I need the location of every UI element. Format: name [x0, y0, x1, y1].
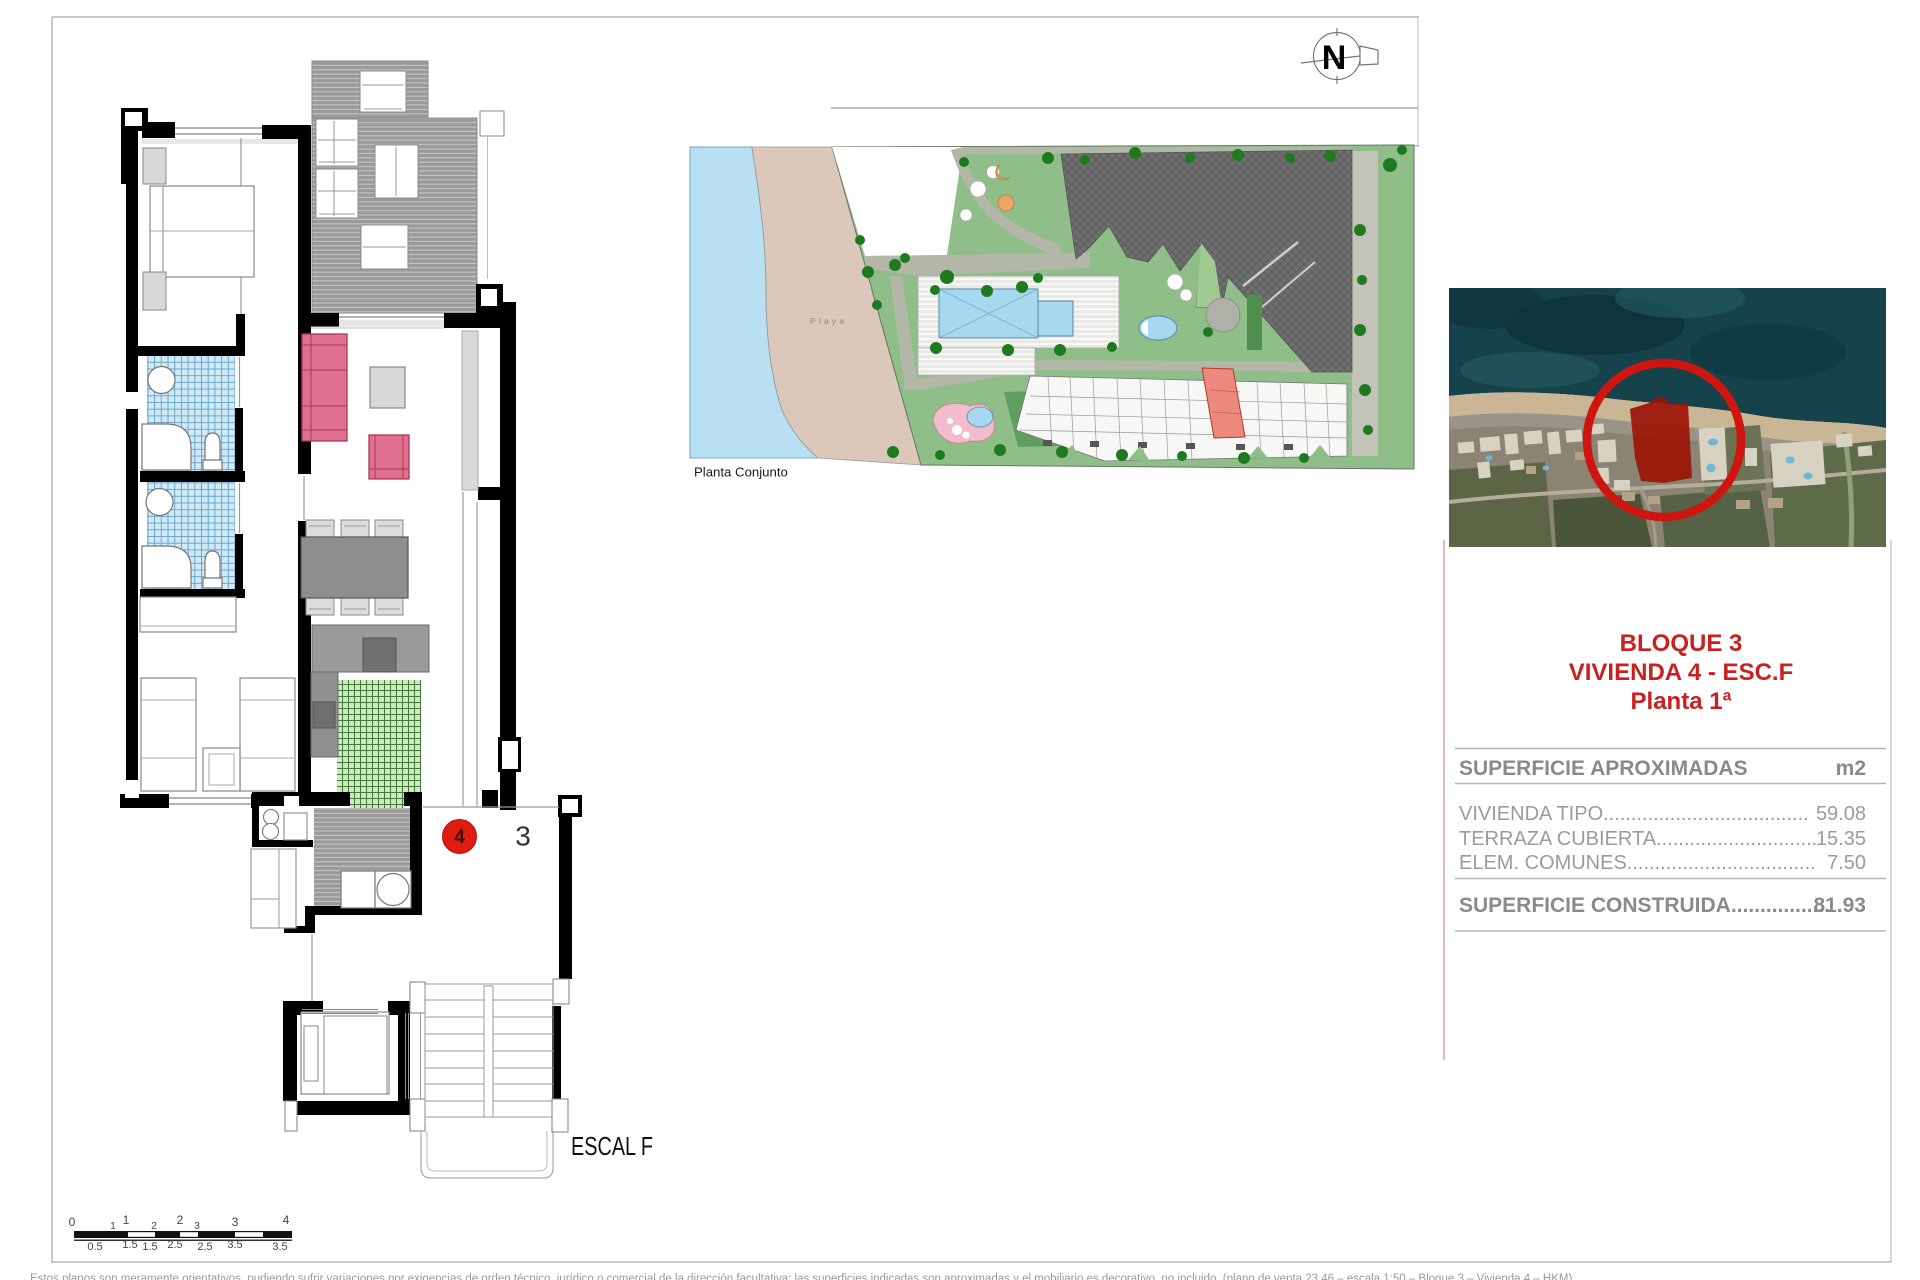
svg-text:SUPERFICIE APROXIMADAS: SUPERFICIE APROXIMADAS — [1459, 757, 1748, 780]
svg-text:VIVIENDA 4 - ESC.F: VIVIENDA 4 - ESC.F — [1569, 659, 1793, 686]
svg-text:Estos planos son meramente ori: Estos planos son meramente orientativos,… — [30, 1273, 1572, 1280]
svg-text:ELEM. COMUNES.................: ELEM. COMUNES...........................… — [1459, 852, 1816, 874]
svg-text:59.08: 59.08 — [1816, 803, 1866, 825]
svg-text:4: 4 — [454, 827, 465, 848]
svg-text:81.93: 81.93 — [1813, 894, 1866, 917]
svg-text:SUPERFICIE CONSTRUIDA.........: SUPERFICIE CONSTRUIDA................. — [1459, 894, 1830, 917]
svg-text:2: 2 — [177, 1213, 184, 1227]
svg-text:1.5: 1.5 — [122, 1239, 137, 1251]
svg-text:7.50: 7.50 — [1827, 852, 1866, 874]
svg-text:Planta Conjunto: Planta Conjunto — [694, 465, 788, 480]
svg-text:m2: m2 — [1836, 757, 1866, 780]
svg-text:3: 3 — [515, 821, 531, 852]
svg-text:VIVIENDA TIPO.................: VIVIENDA TIPO...........................… — [1459, 803, 1809, 825]
svg-text:1.5: 1.5 — [142, 1241, 157, 1253]
svg-text:1: 1 — [110, 1221, 116, 1232]
svg-text:BLOQUE 3: BLOQUE 3 — [1620, 630, 1743, 657]
svg-text:TERRAZA CUBIERTA..............: TERRAZA CUBIERTA........................… — [1459, 828, 1817, 850]
svg-text:3: 3 — [194, 1221, 200, 1232]
svg-text:0.5: 0.5 — [87, 1241, 102, 1253]
svg-text:15.35: 15.35 — [1816, 828, 1866, 850]
svg-text:2.5: 2.5 — [167, 1239, 182, 1251]
svg-text:3.5: 3.5 — [227, 1239, 242, 1251]
svg-text:0: 0 — [69, 1215, 76, 1229]
svg-text:3.5: 3.5 — [272, 1241, 287, 1253]
svg-text:3: 3 — [232, 1215, 239, 1229]
svg-text:N: N — [1322, 39, 1347, 77]
svg-text:1: 1 — [123, 1213, 130, 1227]
svg-text:ESCAL F: ESCAL F — [571, 1131, 653, 1161]
svg-text:Playa: Playa — [810, 316, 847, 326]
svg-text:2: 2 — [151, 1221, 157, 1232]
svg-text:Planta 1ª: Planta 1ª — [1631, 688, 1732, 715]
svg-text:4: 4 — [283, 1213, 290, 1227]
svg-text:2.5: 2.5 — [197, 1241, 212, 1253]
